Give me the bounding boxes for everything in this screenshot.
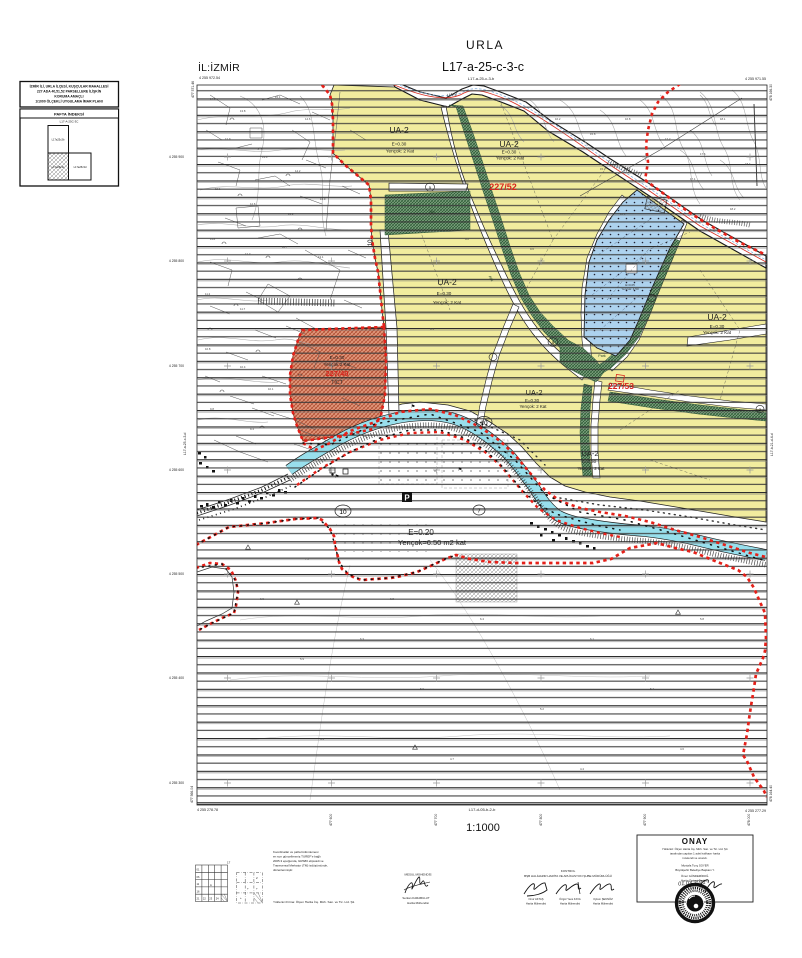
svg-text:UA-2: UA-2 <box>581 449 598 458</box>
svg-text:12.1: 12.1 <box>215 187 221 191</box>
svg-text:Yençok: 2 Kat: Yençok: 2 Kat <box>520 404 548 409</box>
svg-text:227/53: 227/53 <box>608 381 634 391</box>
svg-text:7: 7 <box>477 509 480 515</box>
svg-text:7.2: 7.2 <box>305 557 309 561</box>
svg-text:tarafından yapılan 1 adet hali: tarafından yapılan 1 adet halihazır hari… <box>670 852 721 856</box>
svg-text:UA-2: UA-2 <box>499 139 519 149</box>
svg-text:10.: 10. <box>368 237 374 246</box>
svg-text:9.4: 9.4 <box>250 427 254 431</box>
svg-text:E=0.30: E=0.30 <box>582 459 597 464</box>
svg-text:L17-a-25-c-3-c: L17-a-25-c-3-c <box>442 60 524 74</box>
svg-text:18.4: 18.4 <box>745 162 751 166</box>
svg-text:E=0.20: E=0.20 <box>408 528 434 537</box>
svg-text:17: 17 <box>227 861 231 865</box>
svg-text:Serkan KARABULUT: Serkan KARABULUT <box>402 896 430 900</box>
svg-text:477 900: 477 900 <box>643 814 647 826</box>
svg-text:L17a25c3d: L17a25c3d <box>74 165 87 169</box>
svg-text:⚑: ⚑ <box>458 467 462 473</box>
svg-text:1/1000 ÖLÇEKLİ UYGULAMA İMAR P: 1/1000 ÖLÇEKLİ UYGULAMA İMAR PLANI <box>35 99 102 104</box>
svg-text:4 255 300: 4 255 300 <box>169 781 184 785</box>
svg-text:5.2: 5.2 <box>540 707 544 711</box>
svg-text:13.4: 13.4 <box>262 155 268 159</box>
svg-text:L17-A-25C-3C: L17-A-25C-3C <box>60 120 79 124</box>
svg-text:Harita Mühendisi: Harita Mühendisi <box>526 902 547 906</box>
svg-text:Özgür Yeos KAYA: Özgür Yeos KAYA <box>559 897 581 901</box>
svg-text:TİCT: TİCT <box>331 379 343 386</box>
svg-text:14.3: 14.3 <box>210 97 216 101</box>
svg-text:Yençok: 2 Kat: Yençok: 2 Kat <box>496 156 525 161</box>
svg-text:15.1: 15.1 <box>275 95 281 99</box>
svg-text:13.1: 13.1 <box>318 255 324 259</box>
svg-text:4 255 972.54: 4 255 972.54 <box>199 76 220 80</box>
svg-text:KONTROL: KONTROL <box>561 869 576 873</box>
svg-text:Yençok: 2 Kat: Yençok: 2 Kat <box>703 330 732 335</box>
svg-text:Park: Park <box>598 354 606 358</box>
svg-text:+: + <box>240 896 242 900</box>
svg-text:düzenlenmiştir.: düzenlenmiştir. <box>273 868 293 872</box>
svg-text:10.1: 10.1 <box>268 387 274 391</box>
svg-text:4 255 971.55: 4 255 971.55 <box>745 77 766 81</box>
svg-text:L17a25c3b: L17a25c3b <box>52 138 65 142</box>
svg-text:4 255 900: 4 255 900 <box>169 155 184 159</box>
svg-text:Yençok:2 Kat: Yençok:2 Kat <box>324 362 352 367</box>
svg-text:4.6: 4.6 <box>680 747 684 751</box>
svg-text:13.2: 13.2 <box>288 212 294 216</box>
svg-text:4 255 500: 4 255 500 <box>169 572 184 576</box>
svg-text:UA-2: UA-2 <box>389 125 409 135</box>
svg-text:13.9: 13.9 <box>320 197 326 201</box>
svg-text:4.9: 4.9 <box>320 737 324 741</box>
svg-text:5.6: 5.6 <box>420 687 424 691</box>
svg-text:13.8: 13.8 <box>240 109 246 113</box>
svg-text:E=0.30: E=0.30 <box>710 324 725 329</box>
svg-text:2005.3 epoğunda, GRS80 elipsoi: 2005.3 epoğunda, GRS80 elipsoidi ve <box>273 859 324 863</box>
svg-text:ONAY: ONAY <box>682 837 708 846</box>
svg-text:Yençok: 2 Kat: Yençok: 2 Kat <box>433 300 462 305</box>
svg-text:L17-d-05-b-2-b: L17-d-05-b-2-b <box>469 807 496 812</box>
svg-text:12.6: 12.6 <box>250 202 256 206</box>
svg-text:10: 10 <box>339 509 347 516</box>
svg-text:17.1: 17.1 <box>690 177 696 181</box>
svg-text:BŞB HALİHAZIR HARİTA VE APLİKA: BŞB HALİHAZIR HARİTA VE APLİKASYON ŞUBE … <box>524 873 612 878</box>
svg-text:12.3: 12.3 <box>245 252 251 256</box>
svg-text:478 000: 478 000 <box>747 814 751 826</box>
svg-text:URLA: URLA <box>466 38 504 52</box>
svg-text:Yençok: 4.50: Yençok: 4.50 <box>621 287 639 291</box>
svg-text:4.4: 4.4 <box>580 767 584 771</box>
svg-text:477 700: 477 700 <box>434 814 438 826</box>
svg-text:14.6: 14.6 <box>305 117 311 121</box>
svg-text:Yençok=6.50 m2 kat: Yençok=6.50 m2 kat <box>398 538 467 547</box>
svg-text:227/52: 227/52 <box>489 182 517 192</box>
svg-text:478 164.40: 478 164.40 <box>769 785 773 802</box>
svg-text:5.8: 5.8 <box>700 617 704 621</box>
svg-text:Harita Mühendisi: Harita Mühendisi <box>593 902 614 906</box>
svg-text:477 800: 477 800 <box>539 814 543 826</box>
svg-text:⚑: ⚑ <box>411 404 415 410</box>
svg-text:Harita Mühendisi: Harita Mühendisi <box>560 902 581 906</box>
svg-text:E=0.30: E=0.30 <box>502 150 517 155</box>
svg-text:12.9: 12.9 <box>225 137 231 141</box>
svg-text:Yüklenici Firma: Ölçen Harita: Yüklenici Firma: Ölçen Harita İnş. Müh. … <box>273 899 355 904</box>
svg-text:14.2: 14.2 <box>295 169 301 173</box>
svg-text:KORUMA AMAÇLI: KORUMA AMAÇLI <box>54 95 83 99</box>
svg-text:477 600: 477 600 <box>329 814 333 826</box>
svg-text:227 ADA 40,51,52 PARSELLERE İL: 227 ADA 40,51,52 PARSELLERE İLİŞKİN <box>37 90 102 94</box>
svg-text:4 255 278.78: 4 255 278.78 <box>197 808 218 812</box>
svg-text:en son güncellenmiş TUREF'e ba: en son güncellenmiş TUREF'e bağlı <box>273 855 321 859</box>
svg-text:11.8: 11.8 <box>210 237 216 241</box>
svg-text:6.8: 6.8 <box>390 597 394 601</box>
svg-text:16.2: 16.2 <box>555 117 561 121</box>
svg-text:Transversal Merkator (TM) izdü: Transversal Merkator (TM) izdüşümünde, <box>273 864 328 868</box>
svg-text:477 566.04: 477 566.04 <box>190 786 194 803</box>
svg-text:UA-2: UA-2 <box>707 312 727 322</box>
svg-text:5.9: 5.9 <box>300 657 304 661</box>
svg-text:6.9: 6.9 <box>260 597 264 601</box>
svg-text:P: P <box>404 494 410 503</box>
svg-text:E=0.30: E=0.30 <box>330 355 345 360</box>
svg-text:Harita Mühendisi: Harita Mühendisi <box>407 901 429 905</box>
svg-text:L17-a-25-c-3-b: L17-a-25-c-3-b <box>468 76 495 81</box>
svg-text:17.6: 17.6 <box>700 152 706 156</box>
svg-text:İL:İZMİR: İL:İZMİR <box>198 61 240 74</box>
svg-text:18.1: 18.1 <box>720 117 726 121</box>
svg-text:11.7: 11.7 <box>240 307 246 311</box>
svg-text:L17-b-21-d-4-d: L17-b-21-d-4-d <box>770 433 774 456</box>
svg-text:6.4: 6.4 <box>480 617 484 621</box>
svg-text:4 255 700: 4 255 700 <box>169 364 184 368</box>
svg-text:Koordinatlar ve pafta bölümlem: Koordinatlar ve pafta bölümlemesi <box>273 850 319 854</box>
svg-text:15.8: 15.8 <box>590 132 596 136</box>
svg-text:Onur AKTAŞ: Onur AKTAŞ <box>528 897 543 901</box>
svg-text:9.6: 9.6 <box>530 247 534 251</box>
svg-text:İZMİR İLİ, URLA İLÇESİ, KUŞÇUL: İZMİR İLİ, URLA İLÇESİ, KUŞÇULAR MAHALLE… <box>30 85 109 89</box>
svg-text:18.2: 18.2 <box>730 207 736 211</box>
svg-text:4 255 600: 4 255 600 <box>169 468 184 472</box>
svg-text:Yençok: 2 Kat: Yençok: 2 Kat <box>386 149 415 154</box>
svg-text:UA-2: UA-2 <box>525 388 542 397</box>
svg-text:Ömer GÜNDEMİROĞ.: Ömer GÜNDEMİROĞ. <box>681 873 709 878</box>
svg-text:4 255 800: 4 255 800 <box>169 259 184 263</box>
svg-text:4 255 277.29: 4 255 277.29 <box>745 809 766 813</box>
svg-text:6.1: 6.1 <box>590 637 594 641</box>
svg-text:8.9: 8.9 <box>430 327 434 331</box>
svg-text:Oylum ŞENSÖZ: Oylum ŞENSÖZ <box>593 897 613 901</box>
svg-text:L17a25c3c: L17a25c3c <box>52 165 65 169</box>
svg-text:16.1: 16.1 <box>620 212 626 216</box>
svg-text:10: 10 <box>480 420 488 427</box>
svg-text:10.4: 10.4 <box>240 365 246 369</box>
svg-text:L17-a-25-c-3-d: L17-a-25-c-3-d <box>183 432 187 455</box>
svg-text:A: A <box>210 883 212 887</box>
svg-text:4.7: 4.7 <box>450 757 454 761</box>
svg-text:11.2: 11.2 <box>205 292 211 296</box>
svg-text:Yüklenici: Ölçen Harita İnş.: Yüklenici: Ölçen Harita İnş. Müh. San. v… <box>662 846 728 851</box>
svg-text:4 255 400: 4 255 400 <box>169 676 184 680</box>
svg-text:5.4: 5.4 <box>650 687 654 691</box>
svg-text:Mustafa Tunç SOYER: Mustafa Tunç SOYER <box>681 864 708 868</box>
svg-text:17.2: 17.2 <box>665 137 671 141</box>
svg-text:+: + <box>256 887 258 891</box>
svg-text:477 571.46: 477 571.46 <box>191 81 195 98</box>
svg-text:15.2: 15.2 <box>600 167 606 171</box>
svg-text:PAFTA İNDEKSİ: PAFTA İNDEKSİ <box>54 112 84 117</box>
svg-text:Yençok: 2 Kat: Yençok: 2 Kat <box>578 466 606 471</box>
svg-text:478 166.30: 478 166.30 <box>769 84 773 101</box>
svg-text:6.3: 6.3 <box>360 637 364 641</box>
svg-text:12.7: 12.7 <box>282 245 288 249</box>
svg-text:E=0.30: E=0.30 <box>392 142 407 147</box>
svg-text:⚑: ⚑ <box>335 474 339 480</box>
svg-text:10.8: 10.8 <box>205 347 211 351</box>
svg-text:1:1000: 1:1000 <box>466 822 500 834</box>
svg-text:9.2: 9.2 <box>465 237 469 241</box>
svg-text:227/40: 227/40 <box>326 369 349 378</box>
svg-text:UA-2: UA-2 <box>437 277 457 287</box>
svg-text:+: + <box>247 887 249 891</box>
svg-text:Büyükşehir Belediye Başkanı Y.: Büyükşehir Belediye Başkanı Y. <box>675 868 714 872</box>
svg-text:MESUL MÜHENDİS: MESUL MÜHENDİS <box>404 872 431 877</box>
svg-text:incelendi ve onandı.: incelendi ve onandı. <box>683 856 708 860</box>
svg-text:E=0.30: E=0.30 <box>525 398 540 403</box>
svg-text:9.8: 9.8 <box>210 407 214 411</box>
svg-text:Atik: Atik <box>429 210 435 214</box>
svg-text:16.8: 16.8 <box>625 117 631 121</box>
